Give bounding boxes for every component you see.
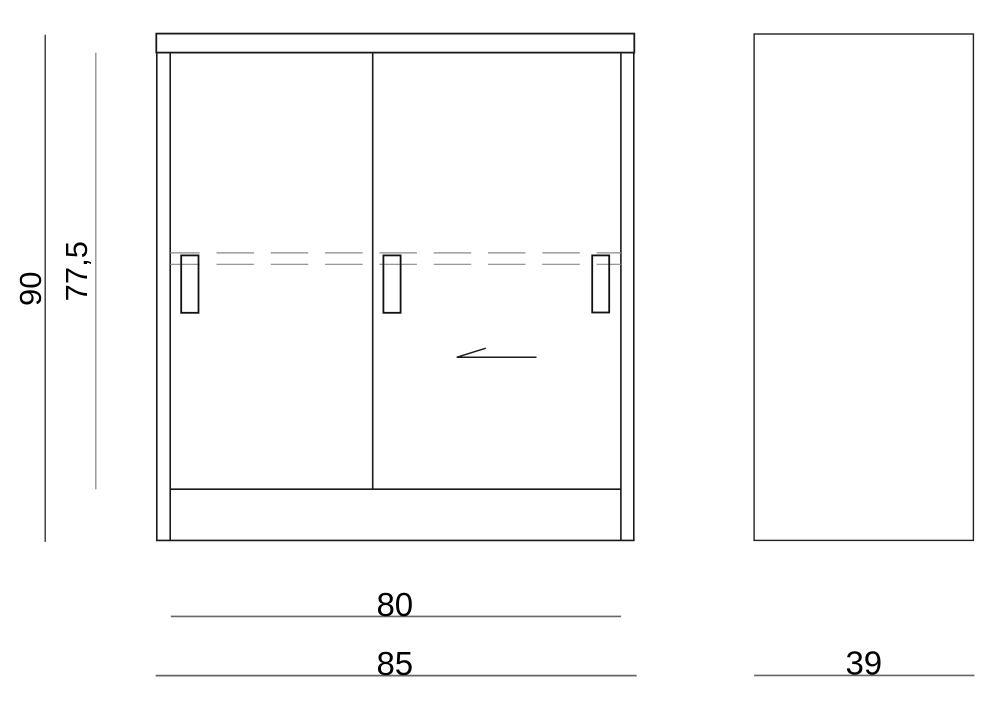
svg-text:77,5: 77,5 — [59, 241, 94, 301]
svg-text:80: 80 — [376, 586, 413, 623]
svg-text:39: 39 — [845, 645, 882, 682]
svg-text:85: 85 — [376, 645, 413, 682]
svg-text:90: 90 — [13, 272, 48, 306]
